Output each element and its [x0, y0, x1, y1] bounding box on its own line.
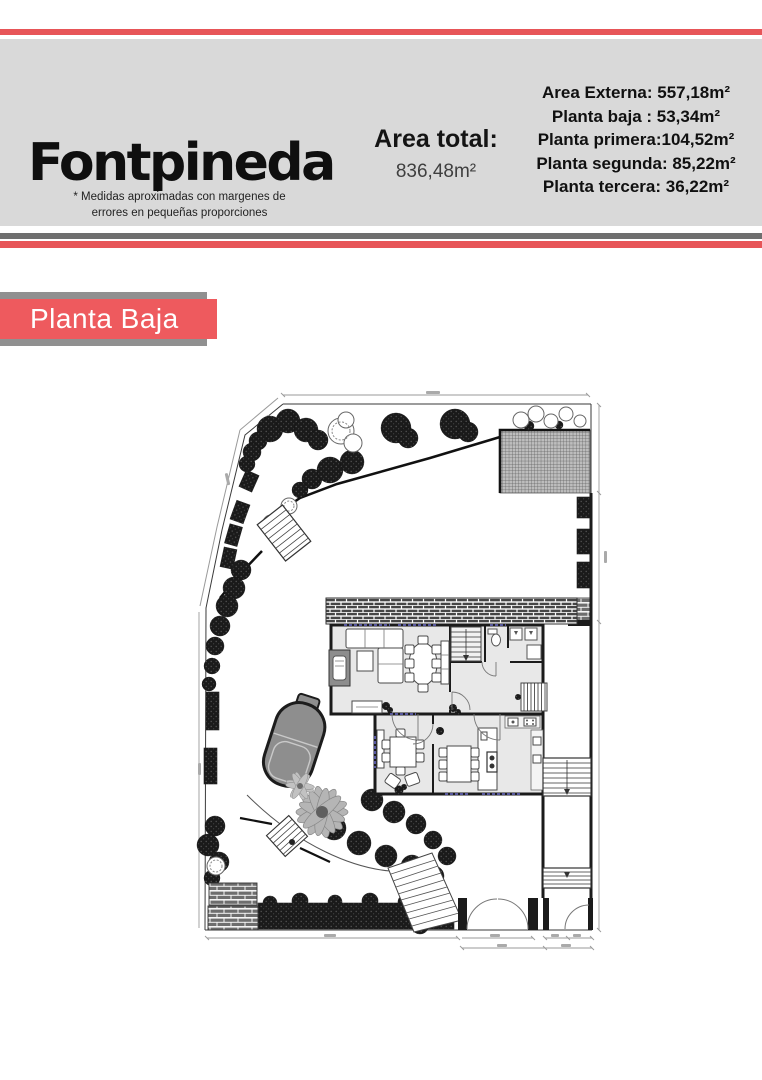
single-door-arc: [565, 905, 589, 929]
roof-brick-band: [326, 598, 577, 624]
header-block: Fontpineda Area total: 836,48m² Area Ext…: [0, 39, 762, 226]
disclaimer-line: * Medidas aproximadas con margenes de: [72, 189, 287, 205]
area-list-item: Area Externa: 557,18m²: [518, 81, 754, 105]
area-list-item: Planta tercera: 36,22m²: [518, 175, 754, 199]
divider-gray-stripe: [0, 233, 762, 239]
area-total-label: Area total:: [370, 125, 502, 154]
area-total: Area total: 836,48m²: [370, 125, 502, 183]
top-red-stripe: [0, 29, 762, 35]
area-total-value: 836,48m²: [370, 161, 502, 183]
section-banner-red: Planta Baja: [0, 299, 217, 339]
disclaimer-line: errores en pequeñas proporciones: [72, 205, 287, 221]
floor-plan: [190, 388, 652, 960]
area-list-item: Planta segunda: 85,22m²: [518, 152, 754, 176]
section-banner-label: Planta Baja: [0, 303, 179, 335]
property-title: Fontpineda: [28, 137, 334, 189]
interior-stairs: [451, 627, 481, 661]
page: Fontpineda Area total: 836,48m² Area Ext…: [0, 0, 762, 1080]
disclaimer: * Medidas aproximadas con margenes de er…: [72, 189, 287, 221]
area-list-item: Planta baja : 53,34m²: [518, 105, 754, 129]
area-list: Area Externa: 557,18m² Planta baja : 53,…: [518, 81, 754, 199]
area-list-item: Planta primera:104,52m²: [518, 128, 754, 152]
double-door-left-arc: [467, 899, 497, 929]
pergola-deck: [500, 430, 590, 493]
right-stairs: [543, 758, 591, 888]
double-door-right-arc: [498, 899, 528, 929]
divider-red-stripe: [0, 241, 762, 248]
entry-doors: [458, 898, 593, 930]
